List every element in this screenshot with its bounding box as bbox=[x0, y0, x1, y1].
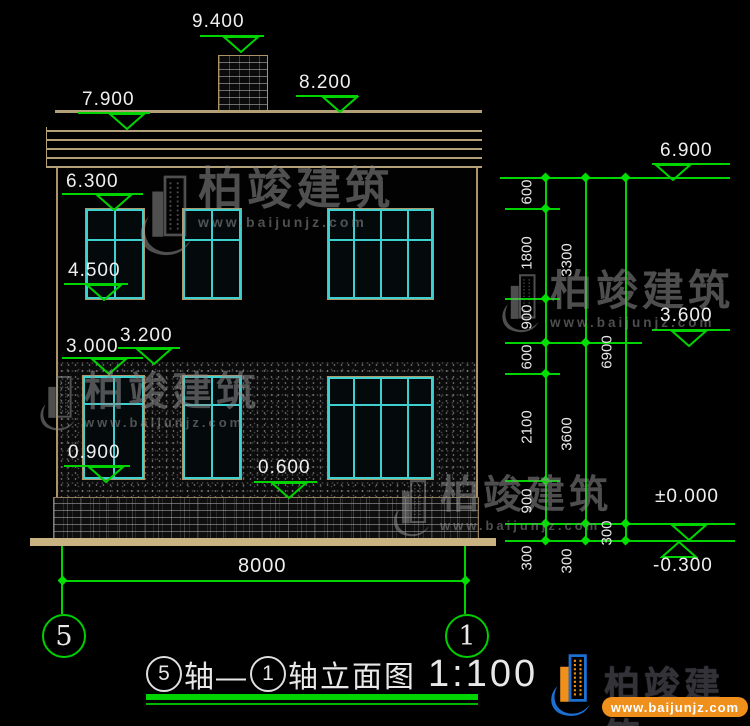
watermark-building-icon bbox=[136, 166, 194, 264]
roof-fascia-lines bbox=[55, 127, 482, 168]
elevation-label: 6.900 bbox=[660, 140, 713, 162]
logo-url: www.baijunjz.com bbox=[611, 700, 739, 715]
elevation-label: 0.900 bbox=[68, 442, 121, 464]
elevation-label: 7.900 bbox=[82, 89, 135, 111]
window-mullion bbox=[407, 209, 409, 299]
elevation-triangle-icon bbox=[87, 466, 125, 483]
dim-tick bbox=[581, 338, 591, 348]
chimney bbox=[218, 55, 268, 113]
dim-extension-line bbox=[505, 373, 560, 375]
width-dim-line bbox=[62, 580, 465, 582]
elevation-label: 3.000 bbox=[66, 336, 119, 358]
dim-label: 600 bbox=[519, 179, 536, 204]
dim-label: 6900 bbox=[599, 335, 616, 368]
dim-label: 3600 bbox=[559, 417, 576, 450]
logo-url-badge: www.baijunjz.com bbox=[602, 697, 748, 717]
title-axis-end-bubble: 1 bbox=[250, 656, 286, 692]
dim-label: 3300 bbox=[559, 243, 576, 276]
dim-chain-line bbox=[625, 177, 627, 540]
window-1f-right bbox=[327, 376, 434, 480]
dim-label: 1800 bbox=[519, 236, 536, 269]
window-mullion bbox=[353, 377, 355, 479]
dim-tick bbox=[58, 576, 68, 586]
elevation-label: 3.200 bbox=[120, 325, 173, 347]
dim-label: 900 bbox=[519, 488, 536, 513]
dim-tick bbox=[621, 173, 631, 183]
watermark-brand: 柏竣建筑 bbox=[198, 166, 394, 211]
dim-label: 900 bbox=[519, 304, 536, 329]
elevation-triangle-icon bbox=[85, 284, 123, 301]
title-axis-start-bubble: 5 bbox=[146, 656, 182, 692]
dim-tick bbox=[541, 173, 551, 183]
watermark-brand: 柏竣建筑 bbox=[84, 372, 260, 412]
elevation-label: 9.400 bbox=[192, 11, 245, 33]
width-dim-label: 8000 bbox=[238, 555, 287, 578]
elevation-triangle-icon bbox=[321, 96, 359, 113]
dim-tick bbox=[541, 369, 551, 379]
elevation-triangle-icon bbox=[95, 194, 133, 211]
watermark-url: www.baijunjz.com bbox=[84, 415, 260, 430]
dim-tick bbox=[621, 536, 631, 546]
elevation-triangle-icon bbox=[670, 524, 708, 541]
window-transom bbox=[328, 404, 433, 406]
dim-tick bbox=[541, 338, 551, 348]
elevation-triangle-icon bbox=[270, 482, 308, 499]
dim-label: 2100 bbox=[519, 410, 536, 443]
dim-tick bbox=[581, 173, 591, 183]
axis-bubble-5: 5 bbox=[42, 614, 86, 658]
dim-tick bbox=[621, 519, 631, 529]
elevation-label: 3.600 bbox=[660, 305, 713, 327]
elevation-label: 6.300 bbox=[66, 171, 119, 193]
elevation-label: 4.500 bbox=[68, 260, 121, 282]
dim-label: 600 bbox=[519, 344, 536, 369]
watermark: 柏竣建筑 www.baijunjz.com bbox=[34, 372, 260, 434]
window-mullion bbox=[380, 377, 382, 479]
elevation-drawing-canvas: 9.400 8.200 7.900 6.300 4.500 3.200 3.00… bbox=[0, 0, 750, 726]
title-scale: 1:100 bbox=[428, 653, 538, 696]
title-underline-thin bbox=[146, 703, 478, 705]
dim-label: 300 bbox=[559, 548, 576, 573]
elevation-triangle-icon bbox=[222, 36, 260, 53]
logo-building-icon bbox=[538, 650, 602, 720]
watermark-url: www.baijunjz.com bbox=[440, 518, 612, 533]
watermark-building-icon bbox=[386, 476, 436, 540]
watermark: 柏竣建筑 www.baijunjz.com bbox=[386, 476, 612, 540]
elevation-label: ±0.000 bbox=[655, 486, 719, 508]
drawing-title: 5 轴— 1 轴立面图 1:100 bbox=[146, 652, 538, 696]
dim-label: 300 bbox=[599, 520, 616, 545]
watermark-url: www.baijunjz.com bbox=[198, 214, 394, 230]
watermark-building-icon bbox=[34, 372, 80, 434]
elevation-label: 8.200 bbox=[299, 72, 352, 94]
elevation-label: 0.600 bbox=[258, 457, 311, 479]
elevation-label: -0.300 bbox=[653, 555, 713, 577]
elevation-triangle-icon bbox=[108, 113, 146, 130]
dim-tick bbox=[461, 576, 471, 586]
roof-fascia-left-tabs bbox=[46, 127, 56, 168]
dim-tick bbox=[541, 204, 551, 214]
watermark: 柏竣建筑 www.baijunjz.com bbox=[136, 166, 394, 264]
window-mullion bbox=[407, 377, 409, 479]
dim-extension-line bbox=[505, 208, 560, 210]
title-text: 轴— bbox=[184, 652, 248, 696]
dim-label: 300 bbox=[519, 545, 536, 570]
title-text: 轴立面图 bbox=[288, 652, 416, 696]
